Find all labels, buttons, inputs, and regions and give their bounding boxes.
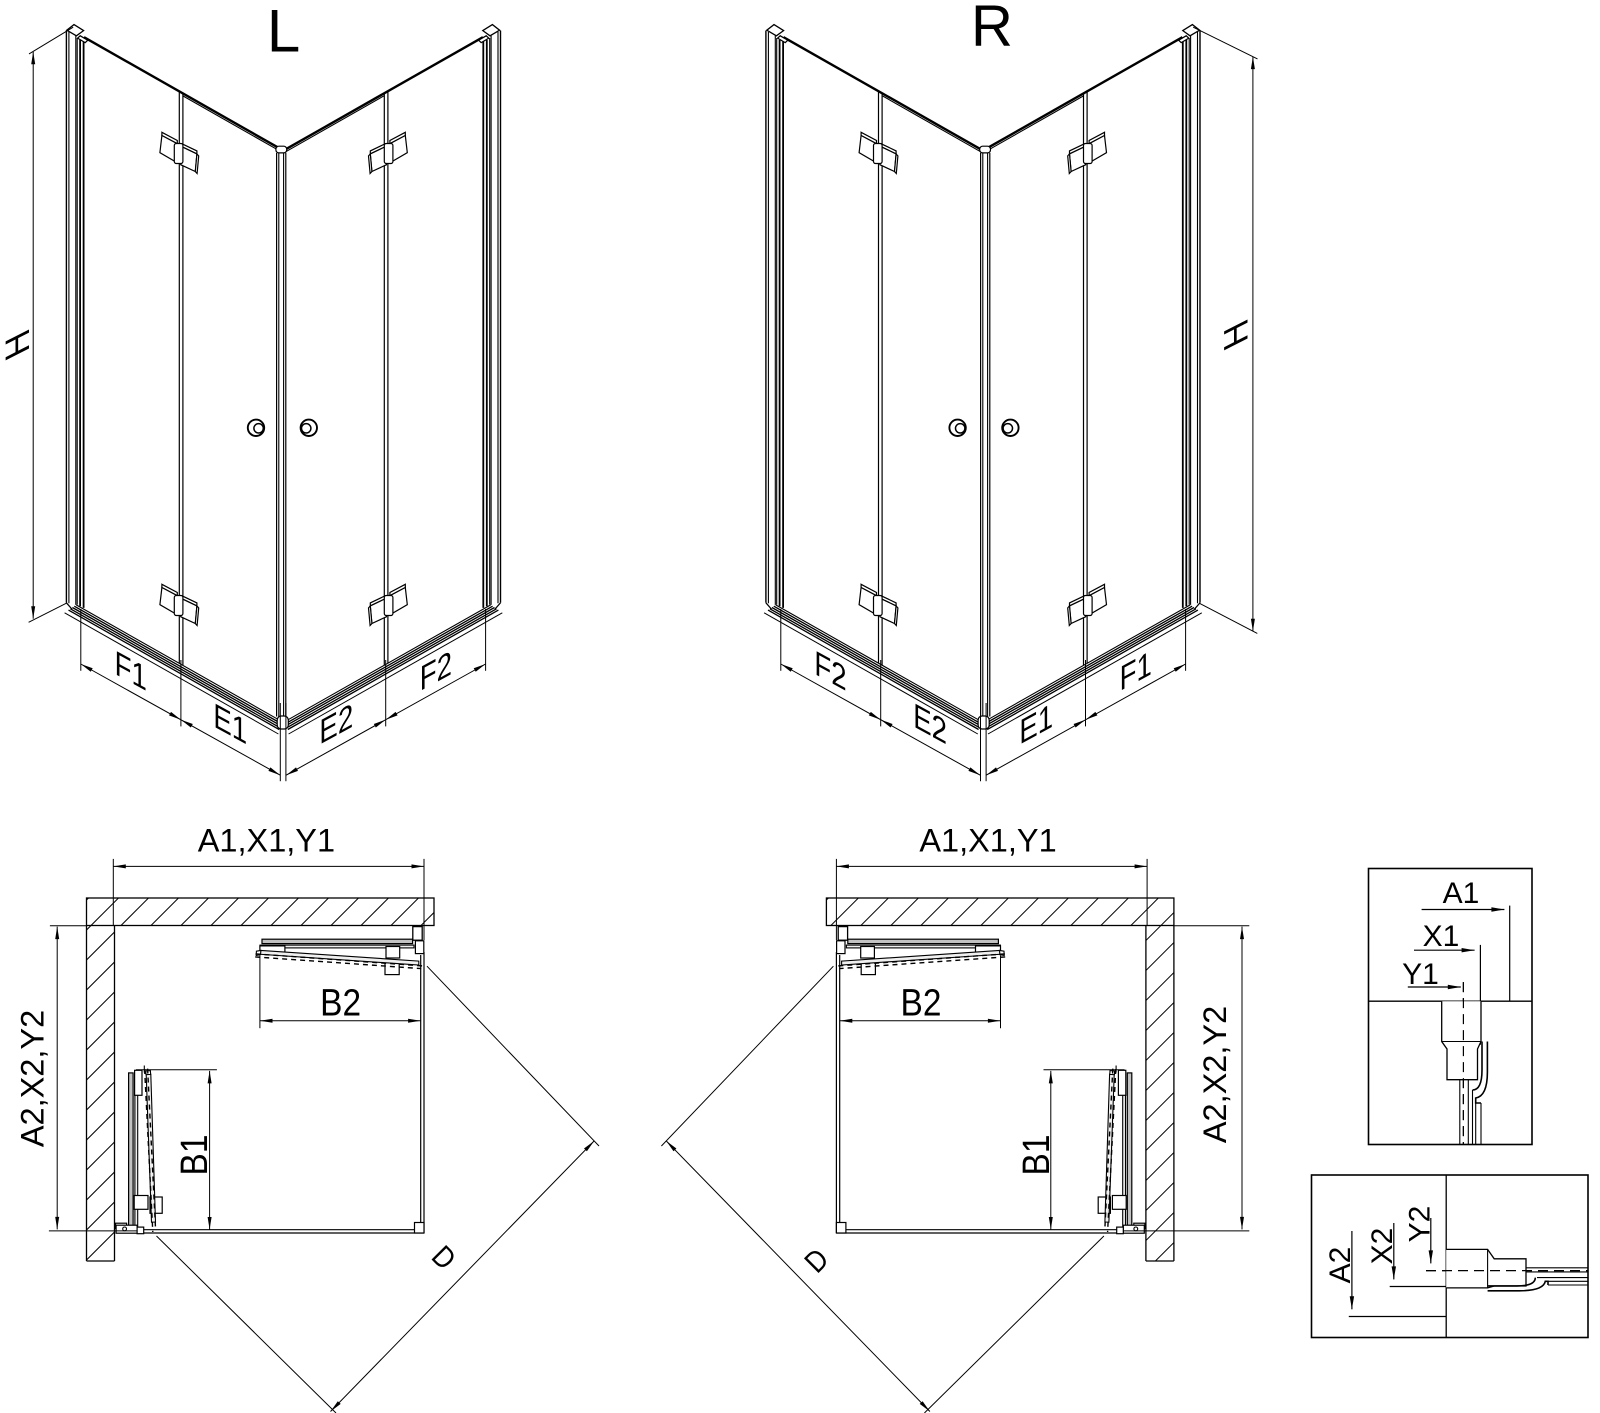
svg-text:B2: B2 xyxy=(901,982,942,1024)
svg-text:A1: A1 xyxy=(1443,877,1480,910)
svg-text:Y2: Y2 xyxy=(1404,1206,1437,1243)
svg-text:A1,X1,Y1: A1,X1,Y1 xyxy=(919,823,1056,859)
svg-text:X1: X1 xyxy=(1423,920,1460,953)
svg-text:L: L xyxy=(267,0,300,65)
svg-text:B1: B1 xyxy=(1015,1135,1057,1176)
svg-text:R: R xyxy=(971,0,1013,59)
svg-text:A2,X2,Y2: A2,X2,Y2 xyxy=(1197,1006,1233,1143)
svg-text:B2: B2 xyxy=(320,982,361,1024)
svg-text:A1,X1,Y1: A1,X1,Y1 xyxy=(198,823,335,859)
svg-text:B1: B1 xyxy=(173,1135,215,1176)
svg-text:Y1: Y1 xyxy=(1402,958,1439,991)
svg-text:A2,X2,Y2: A2,X2,Y2 xyxy=(15,1010,51,1147)
